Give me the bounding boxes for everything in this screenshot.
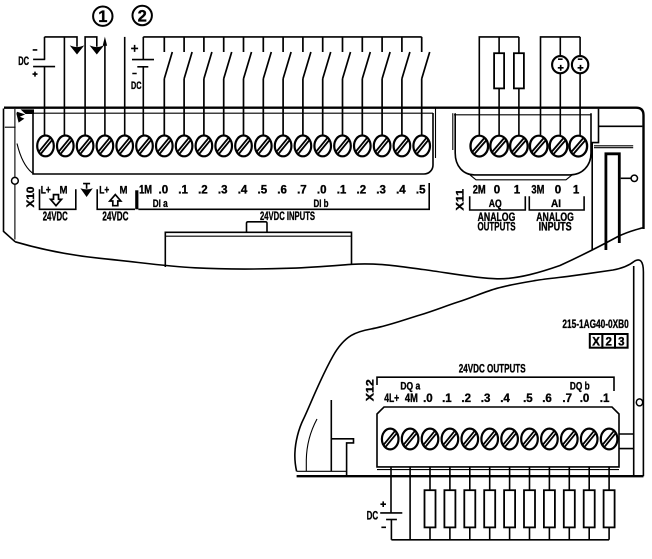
svg-text:.2: .2 bbox=[198, 184, 208, 196]
svg-text:.1: .1 bbox=[337, 184, 347, 196]
svg-text:OUTPUTS: OUTPUTS bbox=[478, 220, 516, 233]
svg-text:L+: L+ bbox=[41, 184, 51, 196]
svg-text:X11: X11 bbox=[454, 189, 466, 211]
svg-text:.1: .1 bbox=[600, 393, 610, 405]
svg-text:.4: .4 bbox=[396, 184, 406, 196]
svg-text:DI b: DI b bbox=[314, 198, 329, 210]
svg-text:.5: .5 bbox=[258, 184, 268, 196]
svg-text:DI a: DI a bbox=[153, 198, 169, 210]
svg-text:X12: X12 bbox=[364, 379, 376, 401]
svg-text:0: 0 bbox=[555, 184, 561, 196]
svg-text:0: 0 bbox=[494, 184, 500, 196]
svg-text:DQ b: DQ b bbox=[570, 380, 590, 392]
svg-text:.4: .4 bbox=[238, 184, 248, 196]
svg-text:3M: 3M bbox=[531, 184, 544, 196]
svg-text:24VDC: 24VDC bbox=[102, 209, 128, 223]
svg-text:M: M bbox=[120, 184, 128, 196]
svg-text:DC: DC bbox=[18, 56, 29, 68]
svg-text:.5: .5 bbox=[416, 184, 426, 196]
svg-text:.0: .0 bbox=[159, 184, 169, 196]
svg-text:.4: .4 bbox=[500, 393, 510, 405]
svg-text:.0: .0 bbox=[580, 393, 590, 405]
svg-text:.3: .3 bbox=[376, 184, 386, 196]
svg-text:DC: DC bbox=[367, 508, 379, 522]
svg-text:.7: .7 bbox=[562, 393, 572, 405]
svg-text:.0: .0 bbox=[423, 393, 433, 405]
svg-text:215-1AG40-0XB0: 215-1AG40-0XB0 bbox=[562, 317, 629, 331]
svg-text:4L+: 4L+ bbox=[384, 393, 399, 405]
svg-text:24VDC OUTPUTS: 24VDC OUTPUTS bbox=[459, 361, 526, 375]
svg-text:X10: X10 bbox=[25, 187, 37, 208]
svg-text:AI: AI bbox=[551, 198, 561, 210]
svg-text:2: 2 bbox=[605, 337, 611, 349]
svg-text:DQ a: DQ a bbox=[400, 380, 420, 392]
svg-text:.5: .5 bbox=[523, 393, 533, 405]
svg-text:2: 2 bbox=[138, 7, 147, 25]
svg-text:.2: .2 bbox=[357, 184, 367, 196]
svg-text:3: 3 bbox=[618, 337, 624, 349]
svg-text:2M: 2M bbox=[473, 184, 486, 196]
svg-text:AQ: AQ bbox=[489, 198, 502, 210]
svg-text:.3: .3 bbox=[218, 184, 228, 196]
svg-text:L+: L+ bbox=[99, 184, 109, 196]
svg-text:1: 1 bbox=[573, 184, 580, 196]
svg-text:.2: .2 bbox=[461, 393, 471, 405]
svg-text:DC: DC bbox=[131, 80, 142, 92]
svg-text:.6: .6 bbox=[277, 184, 287, 196]
svg-text:X: X bbox=[592, 337, 600, 349]
svg-text:M: M bbox=[60, 184, 68, 196]
svg-text:1: 1 bbox=[514, 184, 521, 196]
svg-text:.3: .3 bbox=[481, 393, 491, 405]
svg-text:.6: .6 bbox=[542, 393, 552, 405]
svg-text:24VDC INPUTS: 24VDC INPUTS bbox=[260, 209, 315, 223]
svg-text:24VDC: 24VDC bbox=[43, 209, 68, 223]
svg-text:1: 1 bbox=[98, 8, 107, 26]
svg-text:.0: .0 bbox=[317, 184, 327, 196]
svg-text:.1: .1 bbox=[442, 393, 452, 405]
svg-text:.7: .7 bbox=[297, 184, 307, 196]
svg-text:.1: .1 bbox=[178, 184, 188, 196]
svg-text:4M: 4M bbox=[405, 393, 418, 405]
svg-text:1M: 1M bbox=[139, 184, 152, 196]
svg-text:INPUTS: INPUTS bbox=[539, 220, 572, 233]
